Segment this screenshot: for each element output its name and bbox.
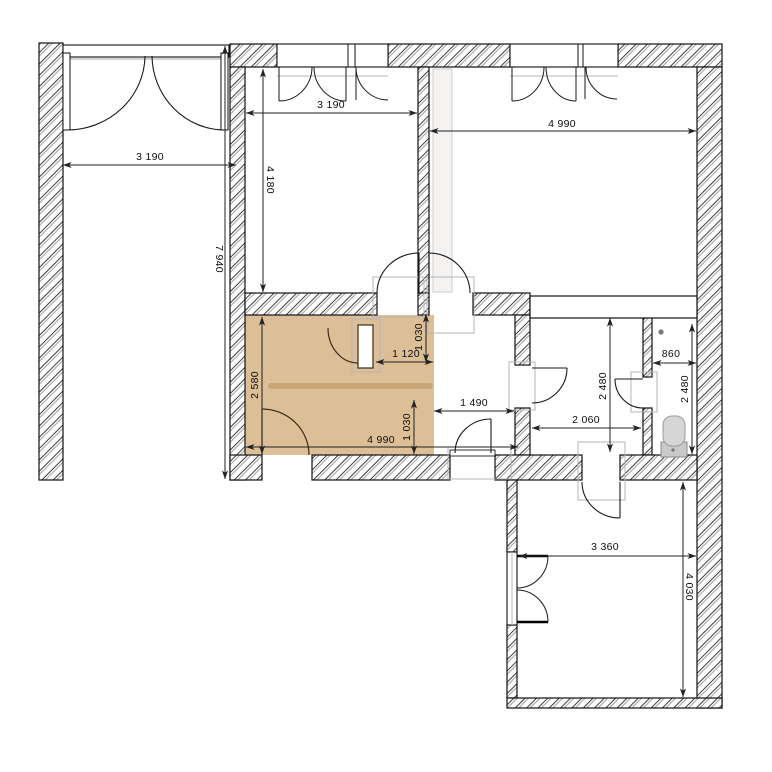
- room-divider-wall: [418, 67, 429, 293]
- west-wall: [230, 67, 245, 480]
- bottomroom-window: [507, 552, 548, 625]
- bath-wc-wall-lower: [643, 408, 652, 455]
- bottomroom-west-wall-upper: [507, 480, 517, 552]
- south-wall-seg2: [312, 455, 450, 480]
- bottomroom-west-wall-lower: [507, 625, 517, 698]
- north-wall-seg3: [618, 44, 722, 67]
- toilet-fixture: [661, 416, 687, 457]
- hall-bath-wall-lower: [515, 408, 530, 455]
- north-wall-seg1: [230, 44, 277, 67]
- patio-door-leaf-left: [63, 53, 70, 130]
- bottomroom-south-wall: [507, 698, 722, 708]
- entry-door: [450, 419, 495, 456]
- patio-door-arc-right: [152, 56, 225, 130]
- kitchen-floor-highlight: [245, 315, 434, 455]
- patio-west-wall: [39, 43, 63, 480]
- hall-bath-wall-upper: [515, 315, 530, 365]
- patio-door-arc-left: [67, 56, 145, 130]
- mid-wall-seg1: [245, 293, 377, 315]
- patio-french-door: [63, 45, 229, 130]
- mid-wall-seg2: [473, 293, 530, 315]
- south-wall-seg4: [620, 455, 697, 480]
- east-wall: [697, 67, 722, 708]
- entry-threshold: [450, 450, 495, 456]
- toilet-bowl: [663, 416, 685, 446]
- wc-door: [615, 379, 643, 408]
- room2-door: [377, 253, 419, 293]
- room3-window: [510, 44, 618, 101]
- wc-drain-dot: [658, 329, 663, 334]
- bath-wc-wall-upper: [643, 317, 652, 377]
- south-wall-seg3: [495, 455, 582, 480]
- toilet-flush-dot: [671, 448, 674, 451]
- room2-window: [277, 44, 388, 101]
- bath-door-frame: [509, 362, 535, 410]
- kitchen-counter-stripe: [268, 383, 433, 389]
- north-wall-seg2: [388, 44, 510, 67]
- floor-plan-page: 3 1907 9403 1904 1804 9901 0301 1202 580…: [0, 0, 772, 772]
- wc-door-frame: [631, 372, 657, 412]
- bathroom-door: [532, 368, 567, 403]
- south-wall-seg1: [230, 455, 262, 480]
- bottomroom-door-frame: [578, 442, 625, 500]
- room2-door-frame: [373, 277, 424, 317]
- floor-plan-drawing: [0, 0, 772, 772]
- bath-north-partition: [530, 296, 697, 318]
